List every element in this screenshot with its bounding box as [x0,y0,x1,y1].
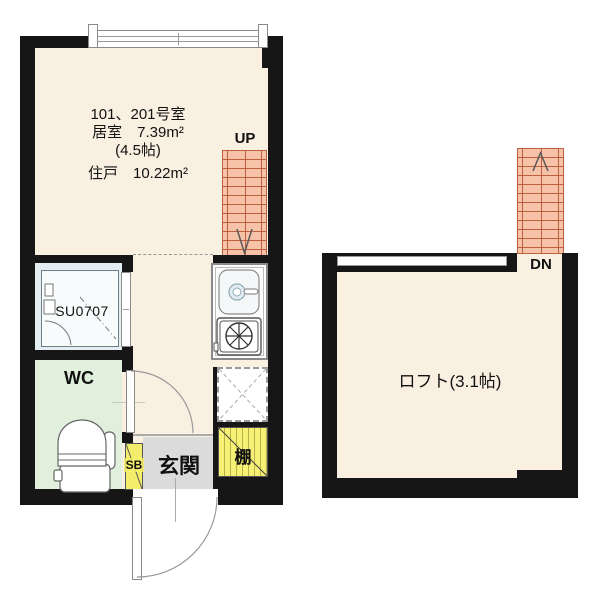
bath-unit-label: SU0707 [46,303,118,319]
window-end-tab [88,24,98,48]
unit-number-line: 101、201号室 [40,106,236,124]
stairs-up-label: UP [228,130,262,147]
tatami-line: (4.5帖) [40,142,236,160]
room-area-line: 居室 7.39m² [40,124,236,142]
loft-floor-plan: DN ロフト(3.1帖) [300,0,610,595]
stairs-up-arrow [223,151,266,256]
main-floor-plan: 101、201号室 居室 7.39m² (4.5帖) 住戸 10.22m² UP [0,0,320,595]
bathroom-bottom-wall [35,350,133,360]
stairs-up [222,150,267,257]
unit-info-text: 101、201号室 居室 7.39m² (4.5帖) 住戸 10.22m² [40,106,236,183]
loft-bottom-notch [517,470,578,498]
window-symbol [91,30,266,48]
room-door-swing-arc [130,368,200,438]
bathroom-top-wall [35,255,133,263]
shelf-label: 棚 [228,443,258,468]
window-end-tab [258,24,268,48]
loft-railing [337,256,507,266]
bathroom-right-wall-top [122,255,133,272]
bottom-right-wall-block [213,477,283,505]
entrance-step-line [133,434,215,436]
stairs-dn [517,148,564,255]
wc-label: WC [58,368,100,389]
loft-label: ロフト(3.1帖) [360,367,540,392]
kitchen-counter [211,263,268,360]
shoebox-label: SB [124,458,144,472]
toilet-symbol [50,404,116,496]
stairs-dn-arrow [518,149,563,254]
floorplan-image: 101、201号室 居室 7.39m² (4.5帖) 住戸 10.22m² UP [0,0,610,595]
loft-outline-dash [133,254,213,255]
entrance-door-swing-arc [135,495,221,581]
stairs-dn-label: DN [522,256,560,273]
refrigerator-space [217,367,268,422]
wall-below-stairs [213,255,268,263]
bathroom-door [121,272,131,347]
entrance-label: 玄関 [145,450,213,480]
total-area-line: 住戸 10.22m² [40,165,236,183]
